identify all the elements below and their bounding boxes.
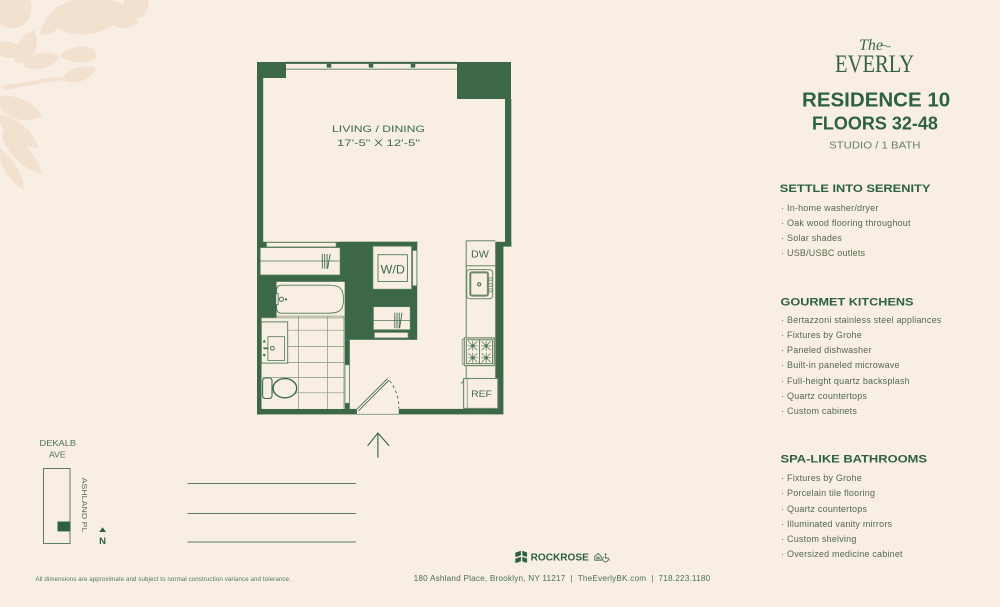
svg-text:SPA-LIKE BATHROOMS: SPA-LIKE BATHROOMS	[781, 454, 928, 466]
svg-text:RESIDENCE 10: RESIDENCE 10	[802, 88, 950, 111]
svg-text:W/D: W/D	[381, 263, 406, 277]
svg-text:STUDIO / 1 BATH: STUDIO / 1 BATH	[829, 140, 920, 151]
svg-text:17'-5" X 12'-5": 17'-5" X 12'-5"	[337, 138, 420, 148]
svg-text:DW: DW	[471, 250, 489, 261]
svg-text:GOURMET KITCHENS: GOURMET KITCHENS	[781, 297, 914, 309]
svg-text:N: N	[99, 536, 106, 547]
svg-text:AVE: AVE	[49, 451, 66, 460]
svg-text:FLOORS 32-48: FLOORS 32-48	[812, 113, 938, 134]
svg-text:LIVING / DINING: LIVING / DINING	[332, 124, 425, 135]
svg-text:DEKALB: DEKALB	[40, 439, 77, 448]
svg-text:SETTLE INTO SERENITY: SETTLE INTO SERENITY	[780, 183, 931, 195]
svg-text:REF: REF	[471, 389, 492, 399]
svg-text:ROCKROSE: ROCKROSE	[531, 553, 589, 564]
svg-text:ASHLAND PL: ASHLAND PL	[80, 478, 89, 533]
svg-text:EVERLY: EVERLY	[835, 51, 914, 78]
